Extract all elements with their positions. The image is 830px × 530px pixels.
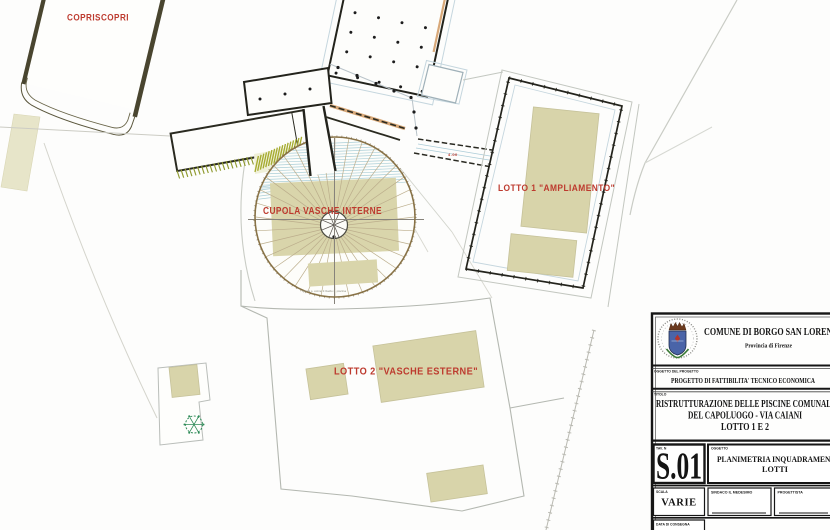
svg-text:Quota s. colmo il livello s. p: Quota s. colmo il livello s. piscina xyxy=(302,289,346,293)
svg-text:LOTTO 2 "VASCHE ESTERNE": LOTTO 2 "VASCHE ESTERNE" xyxy=(334,366,478,378)
svg-text:OGGETTO DEL PROGETTO: OGGETTO DEL PROGETTO xyxy=(654,370,699,374)
svg-text:OGGETTO: OGGETTO xyxy=(711,447,728,451)
svg-text:COMUNE DI BORGO SAN LORENZO: COMUNE DI BORGO SAN LORENZO xyxy=(704,327,830,338)
svg-text:LOTTO 1 E 2: LOTTO 1 E 2 xyxy=(721,422,769,433)
svg-text:PROGETTO DI FATTIBILITA' TECNI: PROGETTO DI FATTIBILITA' TECNICO ECONOMI… xyxy=(671,376,815,385)
svg-text:SCALA: SCALA xyxy=(656,490,668,494)
svg-text:SINDACO IL MEDESIMO: SINDACO IL MEDESIMO xyxy=(711,490,752,494)
svg-text:VARIE: VARIE xyxy=(661,498,696,509)
svg-text:LOTTI: LOTTI xyxy=(762,465,788,474)
svg-text:S.01: S.01 xyxy=(656,446,702,488)
svg-text:DEL CAPOLUOGO - VIA CAIANI: DEL CAPOLUOGO - VIA CAIANI xyxy=(688,411,802,422)
svg-text:PROGETTISTA: PROGETTISTA xyxy=(778,490,804,494)
svg-text:COPRISCOPRI: COPRISCOPRI xyxy=(67,13,129,23)
svg-text:RISTRUTTURAZIONE DELLE PISCINE: RISTRUTTURAZIONE DELLE PISCINE COMUNALI xyxy=(656,399,830,410)
svg-text:TITOLO: TITOLO xyxy=(654,393,667,397)
svg-text:Provincia di Firenze: Provincia di Firenze xyxy=(745,343,792,350)
svg-text:DATA DI CONSEGNA: DATA DI CONSEGNA xyxy=(656,522,690,526)
svg-text:4.00: 4.00 xyxy=(448,152,458,157)
svg-text:CUPOLA VASCHE INTERNE: CUPOLA VASCHE INTERNE xyxy=(263,206,382,217)
svg-text:LOTTO 1 "AMPLIAMENTO": LOTTO 1 "AMPLIAMENTO" xyxy=(498,183,615,194)
svg-text:PLANIMETRIA INQUADRAMENTO: PLANIMETRIA INQUADRAMENTO xyxy=(717,455,830,464)
